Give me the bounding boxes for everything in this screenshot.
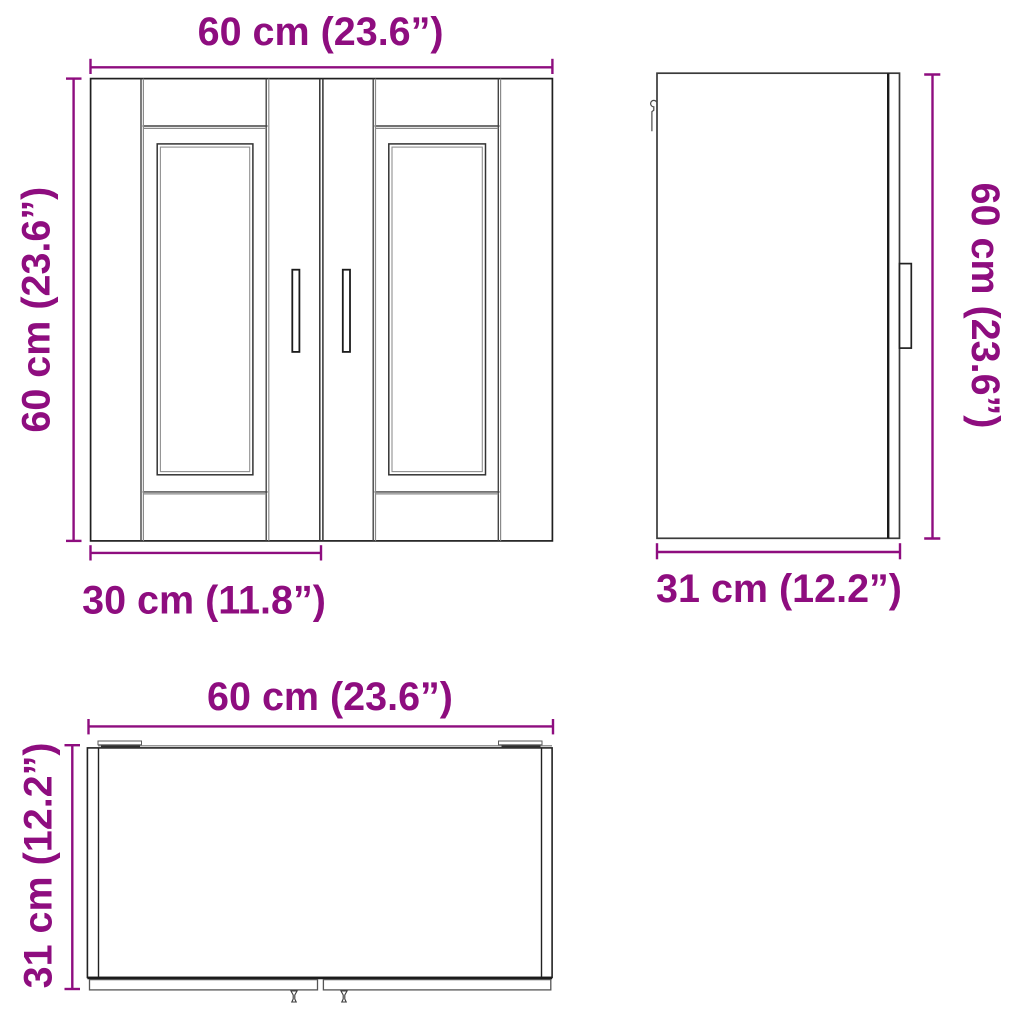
svg-text:60 cm (23.6”): 60 cm (23.6”) — [207, 675, 453, 719]
svg-text:31 cm (12.2”): 31 cm (12.2”) — [656, 567, 902, 611]
svg-text:30 cm (11.8”): 30 cm (11.8”) — [82, 579, 326, 623]
svg-text:31 cm (12.2”): 31 cm (12.2”) — [17, 742, 61, 988]
svg-text:60 cm (23.6”): 60 cm (23.6”) — [15, 187, 59, 433]
svg-text:60 cm (23.6”): 60 cm (23.6”) — [198, 10, 444, 54]
svg-text:60 cm (23.6”): 60 cm (23.6”) — [963, 183, 1007, 429]
